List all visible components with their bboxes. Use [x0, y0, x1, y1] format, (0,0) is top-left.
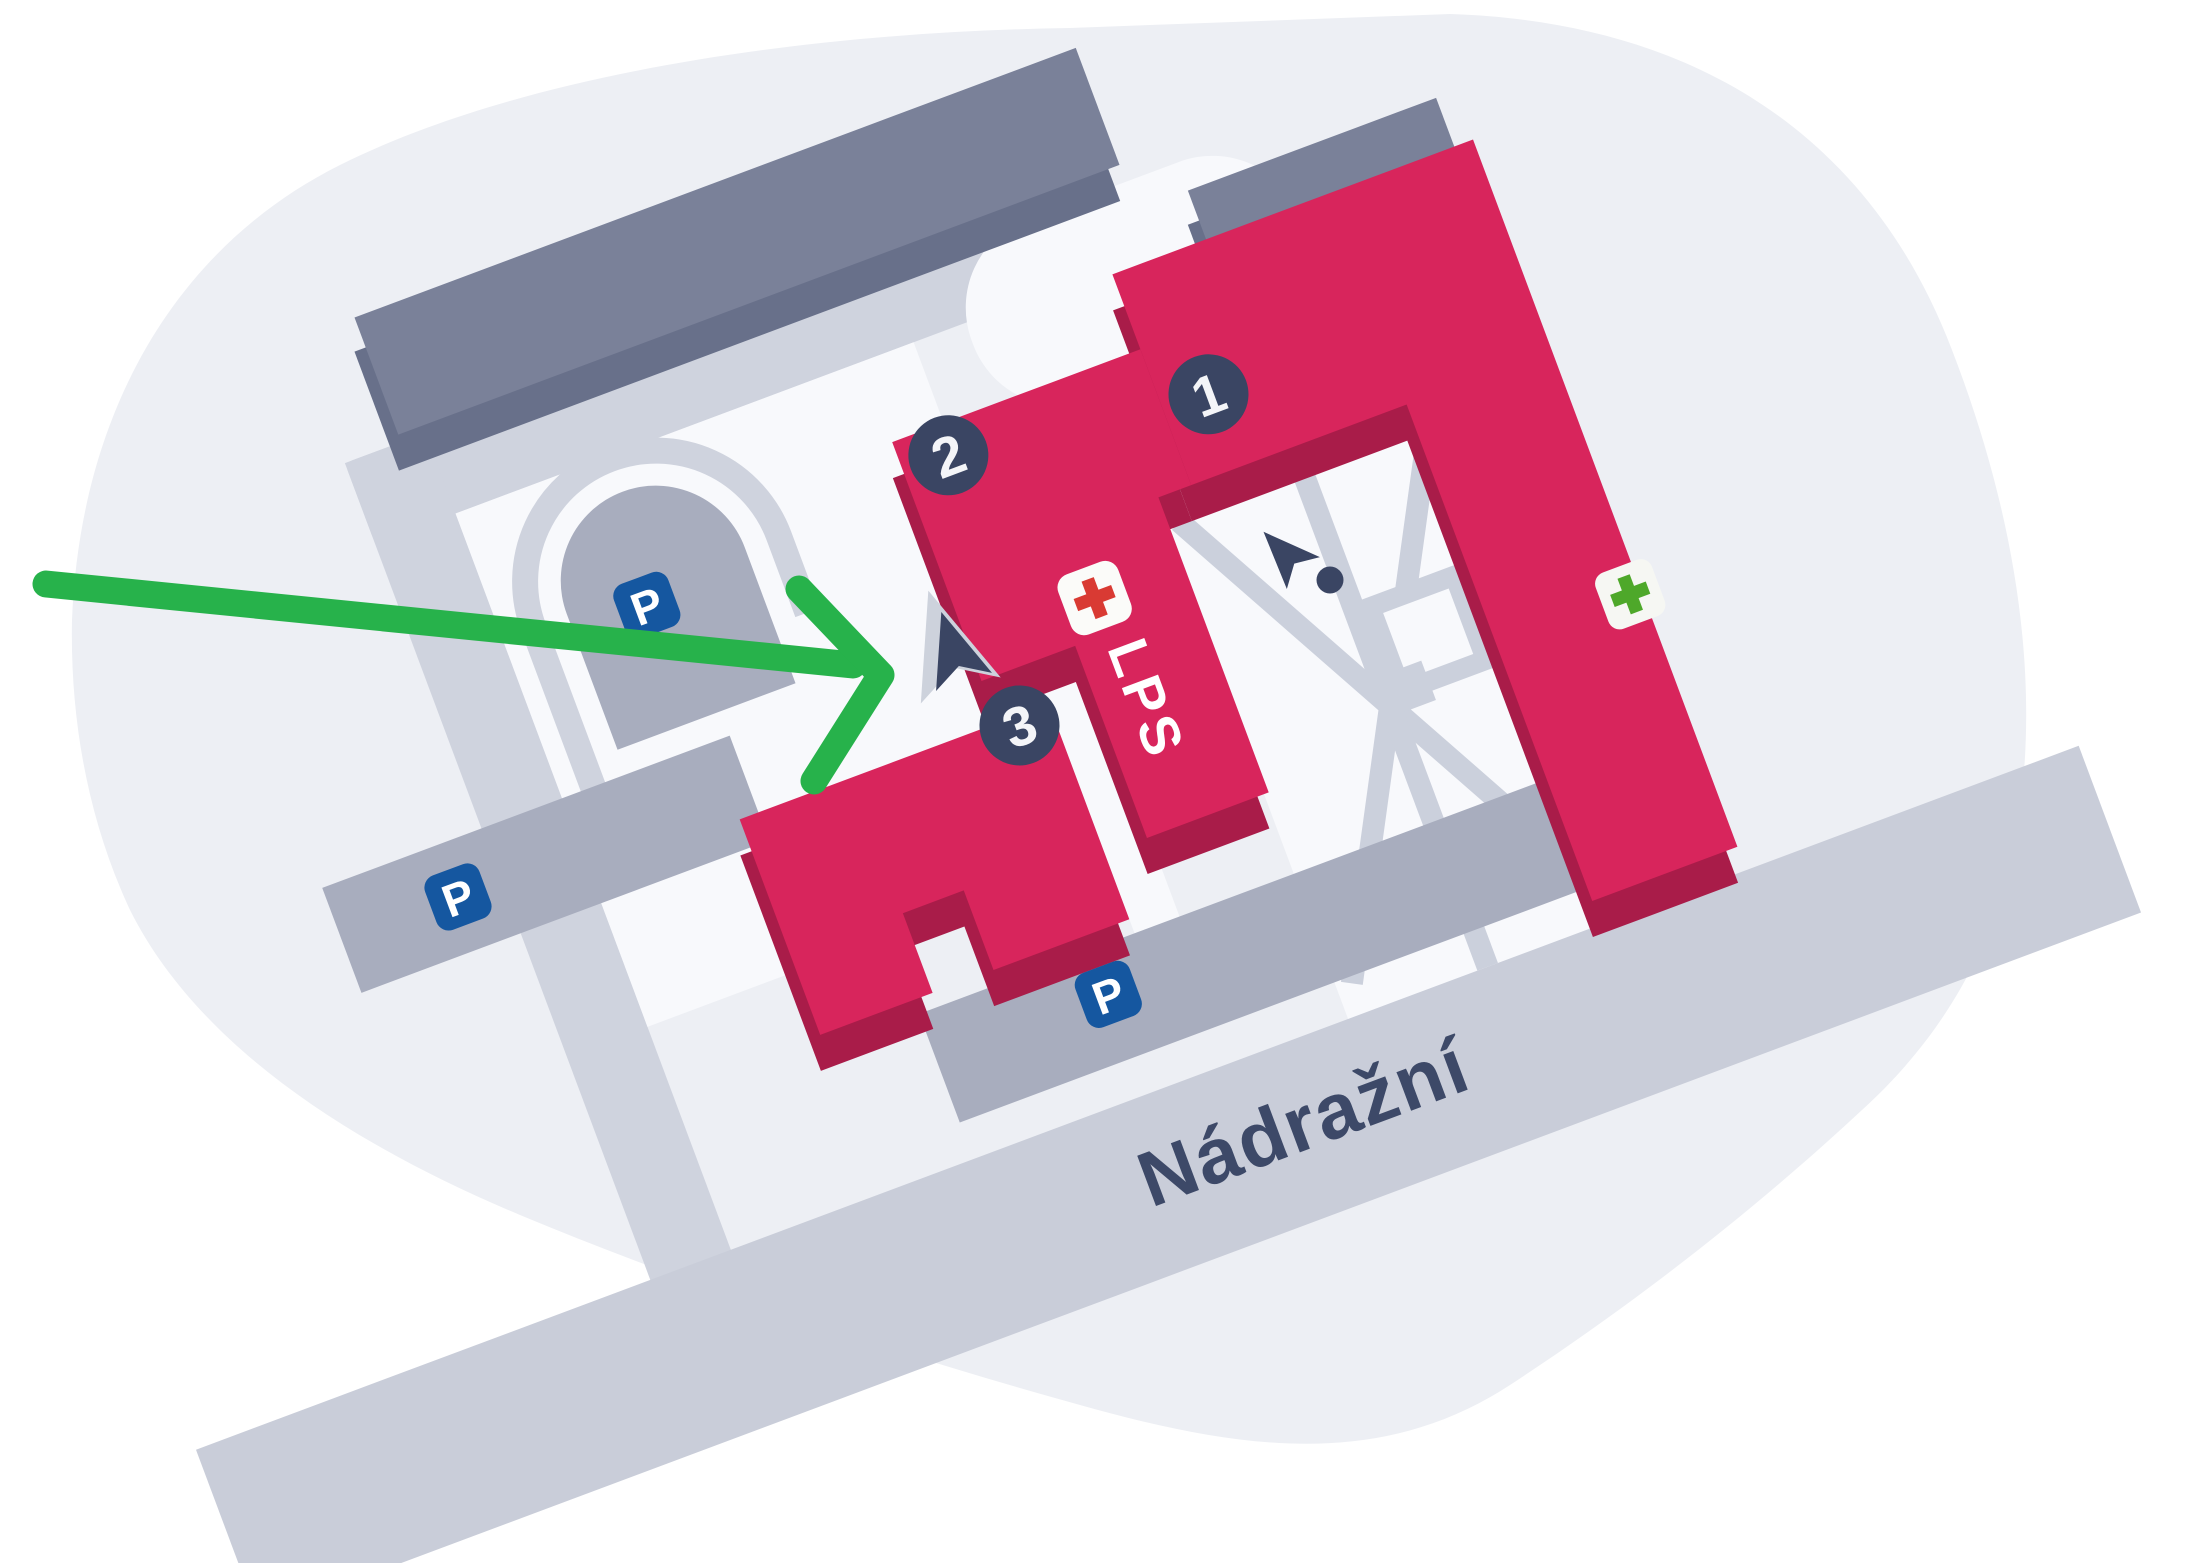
campus-map-svg: Nádražní LPS — [0, 0, 2188, 1563]
hospital-campus-map: Nádražní LPS — [0, 0, 2188, 1563]
entrance-dot-icon — [1317, 567, 1344, 594]
